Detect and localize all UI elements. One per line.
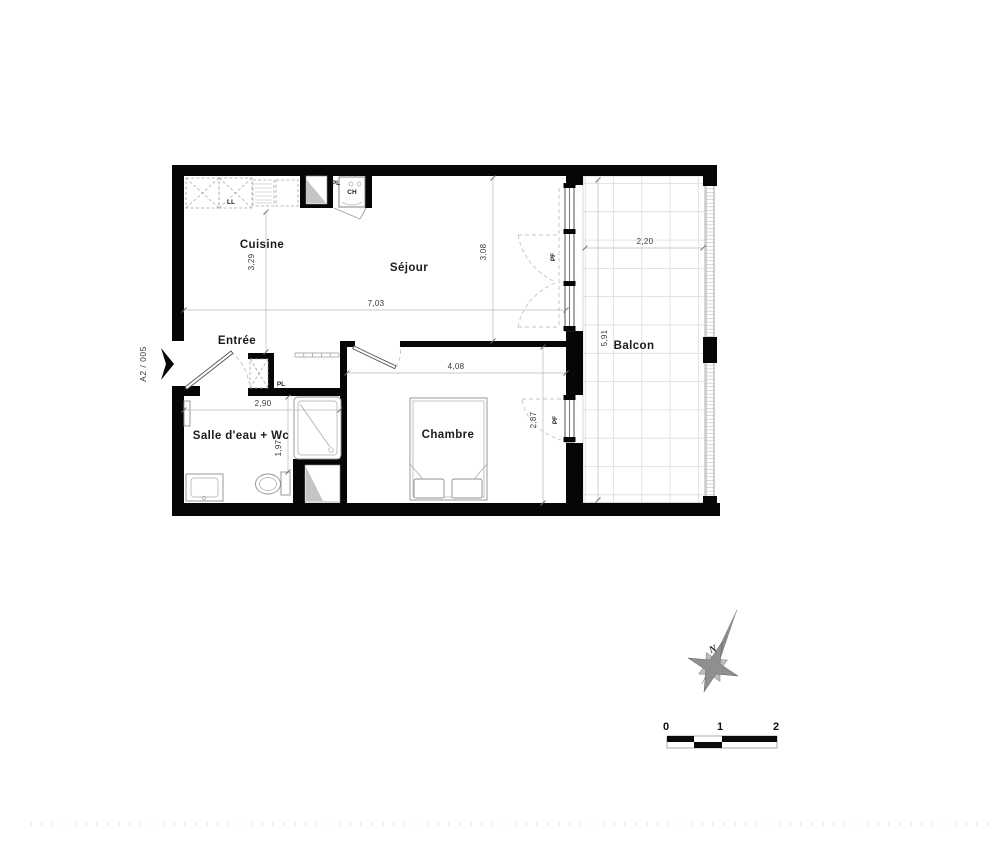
label-chauffe-eau: CH bbox=[347, 189, 357, 196]
svg-text:3,29: 3,29 bbox=[247, 253, 256, 270]
compass-rose: N bbox=[688, 610, 738, 692]
scale-tick-0: 0 bbox=[663, 721, 669, 733]
shower bbox=[294, 397, 341, 459]
scale-tick-2: 2 bbox=[773, 721, 779, 733]
sejour-radiator bbox=[295, 353, 339, 357]
scale-bar: 0 1 2 bbox=[663, 721, 779, 748]
svg-text:4,08: 4,08 bbox=[448, 362, 465, 371]
closet-door-open bbox=[334, 208, 360, 219]
svg-text:2,87: 2,87 bbox=[529, 411, 538, 428]
dim-sejour-depth: 3,08 bbox=[479, 176, 496, 344]
scale-tick-1: 1 bbox=[717, 721, 723, 733]
dim-total-width: 7,03 bbox=[182, 299, 569, 313]
entry-door-leaf bbox=[185, 351, 233, 389]
entrance-arrow-icon bbox=[161, 348, 174, 380]
room-label-salle-eau: Salle d'eau + Wc bbox=[193, 430, 290, 442]
bed bbox=[410, 398, 487, 500]
svg-text:2,90: 2,90 bbox=[255, 399, 272, 408]
svg-text:5,91: 5,91 bbox=[600, 329, 609, 346]
floor-plan-drawing: A2 / 005 7,03 3,29 3,08 2,20 bbox=[0, 0, 1000, 857]
pillow bbox=[452, 479, 482, 498]
kitchen-counter bbox=[186, 178, 298, 208]
label-placard-entree: PL bbox=[277, 381, 285, 388]
dim-chambre-depth: 2,87 bbox=[529, 345, 546, 506]
room-label-chambre: Chambre bbox=[422, 429, 475, 441]
room-label-cuisine: Cuisine bbox=[240, 239, 284, 251]
room-label-entree: Entrée bbox=[218, 335, 256, 347]
room-label-balcon: Balcon bbox=[614, 340, 655, 352]
dim-chambre-width: 4,08 bbox=[345, 362, 569, 376]
pillow bbox=[414, 479, 444, 498]
svg-text:2,20: 2,20 bbox=[637, 237, 654, 246]
toilet bbox=[256, 472, 291, 495]
window-sejour bbox=[564, 183, 576, 331]
door-swings bbox=[231, 188, 562, 440]
sejour-door-swing-bottom bbox=[518, 283, 555, 327]
chambre-door-leaf bbox=[353, 346, 396, 369]
label-lave-linge: LL bbox=[227, 199, 235, 206]
floor-plan-page: A2 / 005 7,03 3,29 3,08 2,20 bbox=[0, 0, 1000, 857]
svg-text:7,03: 7,03 bbox=[368, 299, 385, 308]
label-pf-chambre: PF bbox=[552, 416, 559, 424]
unit-label: A2 / 005 bbox=[138, 346, 148, 382]
chambre-door-swing bbox=[396, 347, 401, 367]
drainer-grill bbox=[255, 184, 272, 203]
svg-text:3,08: 3,08 bbox=[479, 243, 488, 260]
window-chambre bbox=[564, 395, 576, 442]
room-label-sejour: Séjour bbox=[390, 262, 428, 274]
entry-door-swing bbox=[231, 352, 249, 383]
dim-balcon-width: 2,20 bbox=[583, 237, 706, 251]
washbasin bbox=[186, 474, 223, 501]
label-pf-sejour: PF bbox=[550, 253, 557, 261]
bathroom-radiator bbox=[184, 401, 190, 426]
dim-balcon-depth: 5,91 bbox=[596, 178, 610, 503]
sink-slot bbox=[276, 180, 298, 206]
label-placard-kitchen: PL bbox=[332, 180, 340, 187]
dim-cuisine-depth: 3,29 bbox=[247, 210, 269, 355]
entry-closet bbox=[250, 359, 268, 388]
